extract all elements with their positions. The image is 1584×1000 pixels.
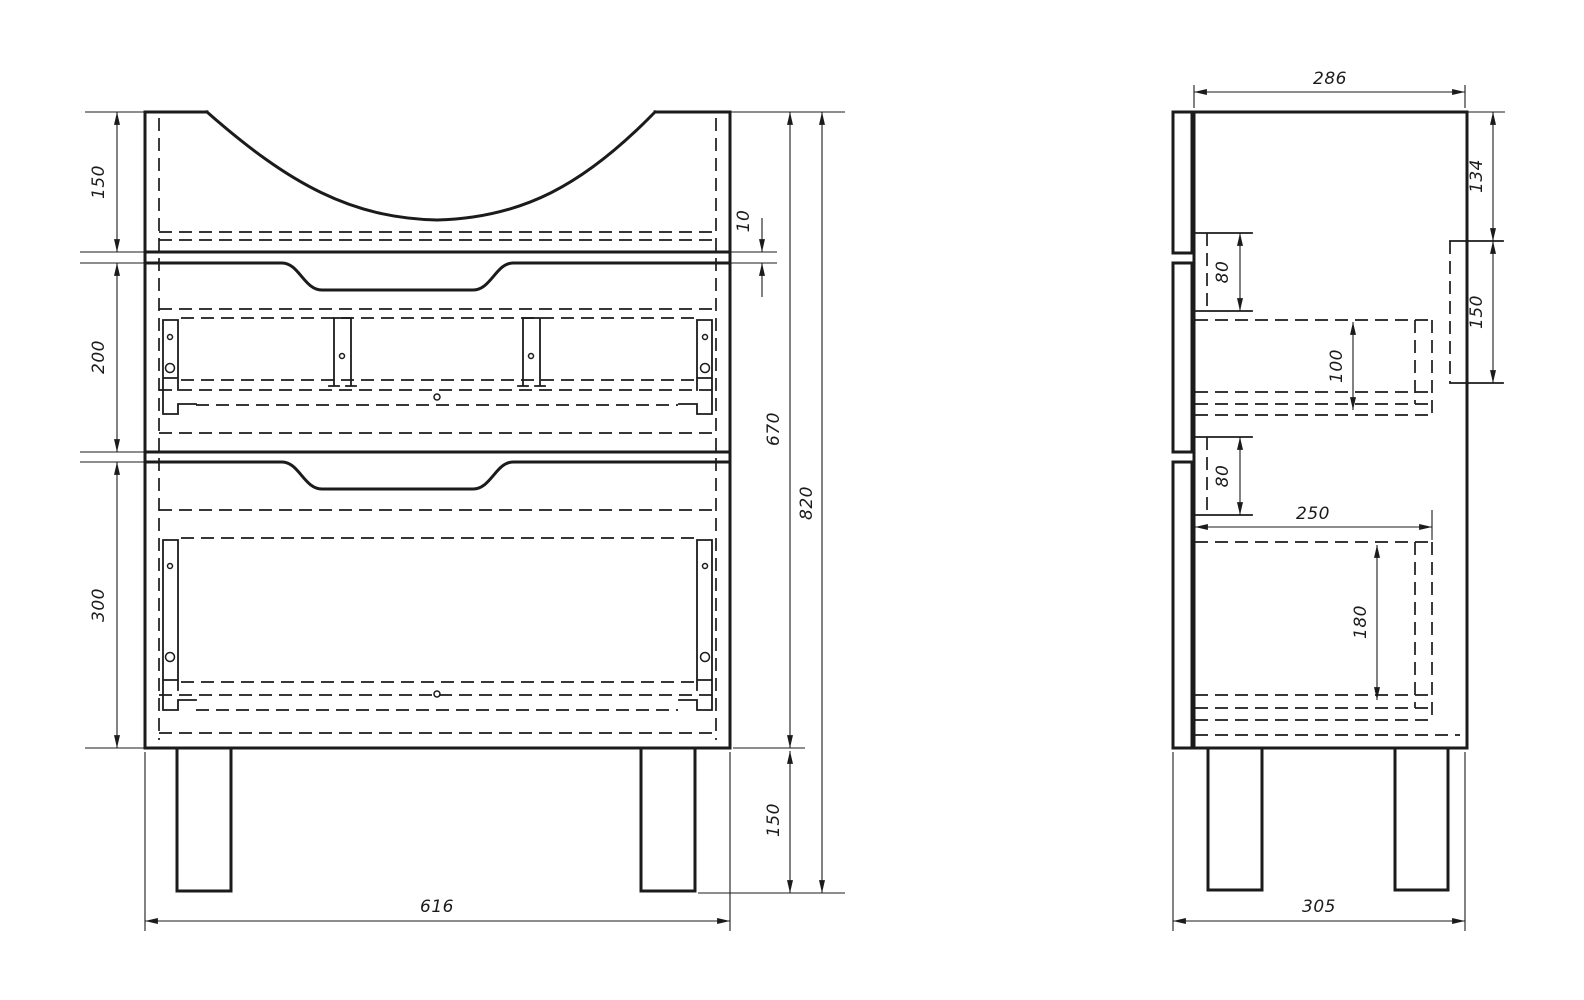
dim-front-width: 616 [420,897,454,917]
side-view: 286 134 150 80 100 80 250 180 305 [1173,69,1505,931]
front-drawer2-internals [159,510,716,733]
side-legs [1208,750,1448,890]
dim-front-drawer2-height: 300 [89,588,109,622]
technical-drawing-page: 150 200 300 10 670 820 150 616 [0,0,1584,1000]
dim-side-drawer-box-depth: 250 [1296,504,1330,524]
side-drawer2-box [1195,542,1460,735]
front-carcass-outline [145,112,730,748]
drawer1-center-screw-hole [434,394,440,400]
side-left-leg [1208,750,1262,890]
side-drawer1-front-edge [1173,263,1192,452]
dim-front-top-section-height: 150 [89,165,109,199]
dim-side-depth: 286 [1313,69,1347,89]
front-right-leg [641,750,695,891]
side-carcass-outline [1173,112,1467,748]
dim-front-gap: 10 [734,210,754,233]
front-left-leg [177,750,231,891]
dim-side-top-to-rail: 134 [1467,159,1487,193]
dim-side-slide1-height: 80 [1213,261,1233,284]
drawer1-mid-left-bracket [329,318,356,386]
dim-side-base-depth: 305 [1302,897,1336,917]
side-drawer1-box [1195,320,1432,415]
drawer2-center-screw-hole [434,691,440,697]
front-section-boundaries [145,252,730,489]
side-top-panel-edge [1173,112,1192,253]
dim-side-drawer2-box-height: 180 [1351,605,1371,639]
dim-front-total-height: 820 [797,486,817,520]
side-drawer2-front-edge [1173,462,1192,748]
cabinet-drawing-svg: 150 200 300 10 670 820 150 616 [0,0,1584,1000]
front-dimension-labels: 150 200 300 10 670 820 150 616 [89,165,817,917]
front-dimension-lines [117,112,822,921]
dim-front-carcass-height: 670 [764,412,784,446]
dim-front-drawer1-height: 200 [89,340,109,374]
drawer2-handle-recess [145,462,730,489]
dim-side-slide2-height: 80 [1213,465,1233,488]
drawer1-right-slide-bracket [679,320,712,414]
drawer1-handle-recess [145,263,730,290]
dim-side-rail-height: 150 [1467,295,1487,329]
front-legs [177,750,695,891]
dim-side-drawer1-box-height: 100 [1327,349,1347,383]
front-view: 150 200 300 10 670 820 150 616 [80,112,845,931]
side-dimension-labels: 286 134 150 80 100 80 250 180 305 [1213,69,1487,917]
front-drawer1-internals [159,309,716,433]
dim-front-leg-height: 150 [764,803,784,837]
drawer1-mid-right-bracket [518,318,545,386]
sink-basin-cutout-curve [207,112,655,220]
side-extension-lines [1173,85,1505,931]
drawer1-left-slide-bracket [163,320,196,414]
front-hidden-lines [159,118,716,740]
side-right-leg [1395,750,1448,890]
side-dimension-lines [1173,92,1493,921]
